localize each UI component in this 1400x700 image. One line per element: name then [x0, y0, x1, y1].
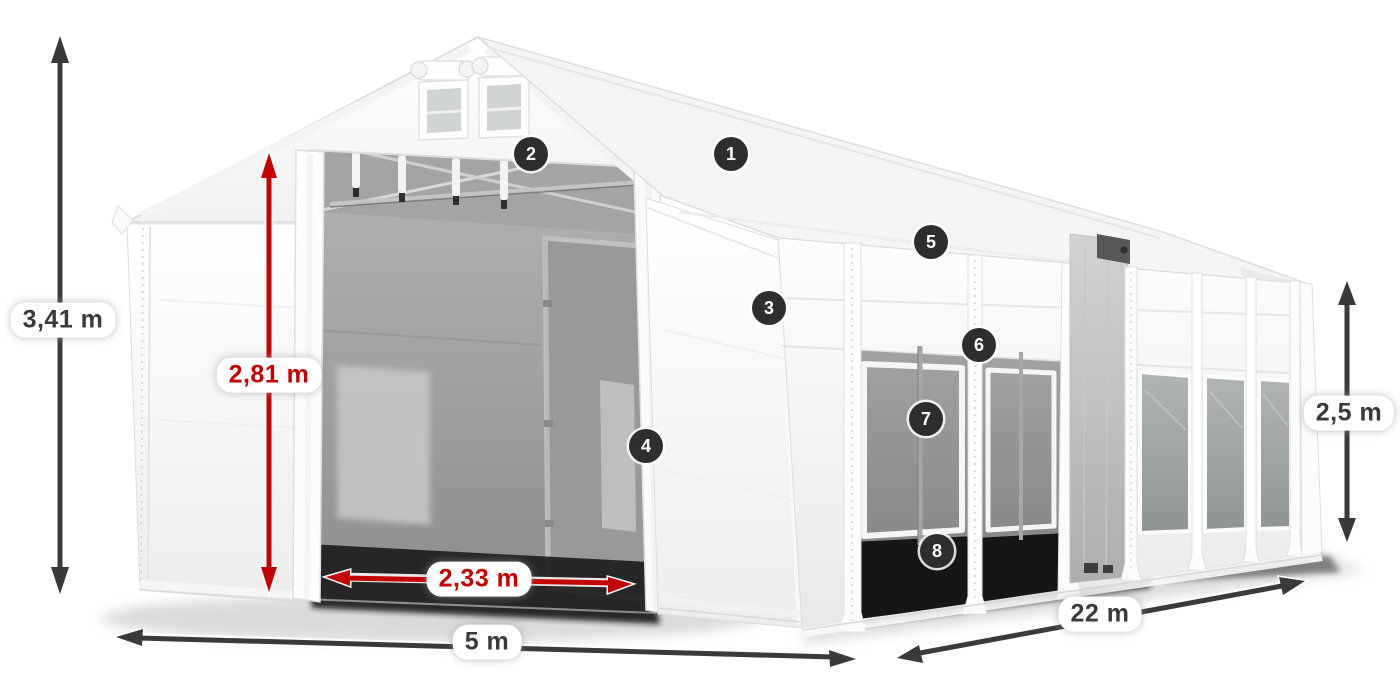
front-entrance-interior	[303, 150, 656, 614]
label-side-height: 2,5 m	[1304, 396, 1394, 431]
marker-3-front-wall: 3	[752, 291, 786, 325]
front-left-wall	[127, 224, 321, 602]
marker-4-entrance-door: 4	[629, 429, 663, 463]
side-window-pane-3	[1140, 372, 1190, 533]
gable-window-left	[411, 61, 475, 140]
marker-7-side-window: 7	[909, 402, 943, 436]
sliding-door	[1070, 234, 1130, 583]
tent-dimension-diagram: 3,41 m 2,81 m 2,33 m 5 m 22 m 2,5 m 1 2 …	[0, 0, 1400, 700]
label-total-height: 3,41 m	[11, 303, 116, 338]
interior-second-doorway	[543, 238, 650, 600]
label-side-length: 22 m	[1059, 597, 1142, 632]
side-window-pane-4	[1205, 376, 1246, 531]
marker-5-side-top-panel: 5	[914, 225, 948, 259]
side-open-bay-1	[850, 346, 975, 620]
marker-6-side-band: 6	[962, 328, 996, 362]
label-front-width: 5 m	[453, 625, 522, 660]
marker-2-roof-frame: 2	[514, 137, 548, 171]
side-open-bay-2	[975, 352, 1066, 604]
tent-illustration	[0, 0, 1400, 700]
label-entrance-height: 2,81 m	[217, 358, 322, 393]
interior-window-glow	[337, 365, 430, 525]
side-window-pane-5	[1259, 379, 1291, 529]
marker-8-side-bottom: 8	[920, 534, 954, 568]
label-entrance-width: 2,33 m	[427, 562, 532, 597]
marker-1-roof: 1	[714, 137, 748, 171]
